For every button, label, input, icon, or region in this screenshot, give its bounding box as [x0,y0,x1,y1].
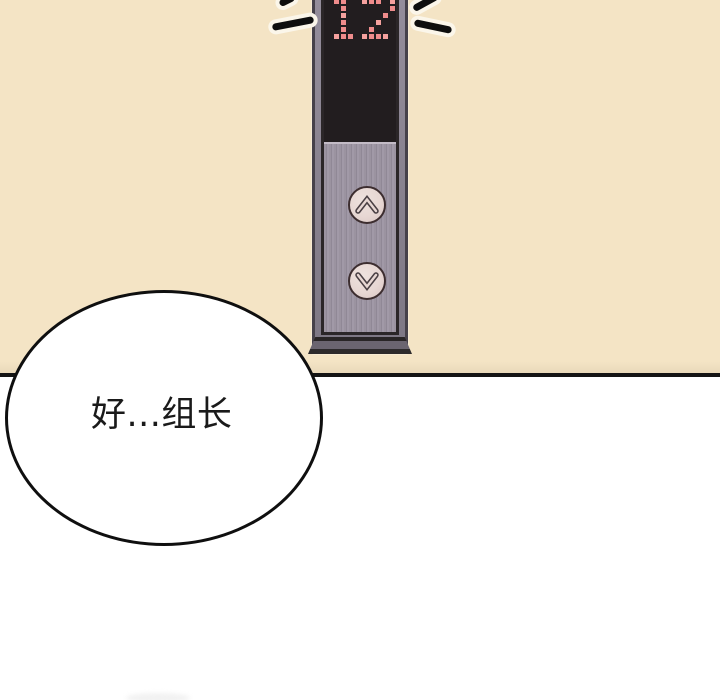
speech-bubble-text: 好...组长 [91,396,232,435]
chevron-up-icon [354,195,380,215]
elevator-up-button[interactable] [348,186,386,224]
elevator-down-button[interactable] [348,262,386,300]
speech-bubble: 好...组长 [5,290,323,546]
chevron-down-icon [354,271,380,291]
floor-display-screen [324,0,396,142]
button-plate [324,142,396,332]
elevator-call-panel [312,0,408,354]
elevator-panel-bottom-bevel [308,337,412,354]
floor-display-dots [334,0,396,41]
comic-panel: 好...组长 [0,0,720,700]
next-panel-artwork-hint [126,693,190,700]
